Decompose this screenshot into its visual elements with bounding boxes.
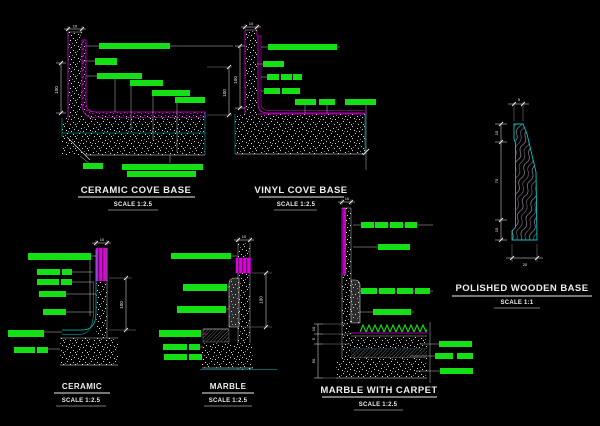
cad-drawing-canvas: 100 100 10 CERAMIC COVE BASE SCALE 1:2.5 bbox=[0, 0, 600, 426]
detail-scale: SCALE 1:2.5 bbox=[62, 398, 101, 404]
detail-marble-with-carpet: 10 5 50 10 MARBLE WITH CARPET SCALE 1:2.… bbox=[311, 196, 473, 410]
redacted-label-bar bbox=[263, 61, 284, 67]
dimension-wall-top: 10 bbox=[241, 21, 261, 29]
dim-text: 100 bbox=[54, 86, 59, 94]
dim-text: 20 bbox=[523, 262, 528, 267]
cove-profile bbox=[62, 250, 96, 335]
redacted-label-bar bbox=[83, 163, 103, 169]
dim-text: 10 bbox=[242, 234, 247, 239]
detail-scale: SCALE 1:2.5 bbox=[114, 202, 153, 208]
floor-section bbox=[235, 114, 365, 154]
dimension-wall-top: 10 bbox=[234, 234, 254, 242]
dim-text: 70 bbox=[494, 178, 499, 183]
wall-section bbox=[96, 248, 107, 338]
dim-text: 10 bbox=[100, 237, 105, 242]
dim-text: 100 bbox=[119, 301, 124, 309]
detail-scale: SCALE 1:2.5 bbox=[359, 402, 398, 408]
detail-title: CERAMIC COVE BASE bbox=[81, 185, 192, 196]
redacted-label-bar bbox=[440, 368, 473, 374]
label-bars bbox=[83, 43, 205, 177]
redacted-label-bar bbox=[37, 279, 59, 285]
redacted-label-bar bbox=[267, 74, 279, 80]
detail-ceramic: 100 10 CERAMIC SCALE 1:2.5 bbox=[8, 237, 136, 406]
detail-title: VINYL COVE BASE bbox=[254, 185, 347, 196]
marble-skirting bbox=[229, 278, 239, 327]
redacted-label-bar bbox=[293, 74, 302, 80]
detail-marble: 100 10 MARBLE SCALE 1:2.5 bbox=[159, 234, 277, 406]
dim-text: 50 bbox=[311, 358, 316, 363]
dim-text: 5 bbox=[311, 337, 316, 340]
dim-text: 100 bbox=[259, 296, 264, 304]
dimension-right: 100 bbox=[109, 276, 136, 332]
dim-text: 5 bbox=[518, 97, 521, 102]
redacted-label-bar bbox=[97, 73, 142, 79]
marble-skirting bbox=[351, 280, 360, 323]
dim-text: 10 bbox=[345, 196, 350, 201]
wall-tile-block bbox=[236, 258, 251, 273]
dim-text: 15 bbox=[494, 227, 499, 232]
dimension-wall-top: 10 bbox=[64, 24, 86, 32]
redacted-label-bar bbox=[264, 88, 280, 94]
dimension-wall-top: 10 bbox=[92, 237, 111, 246]
redacted-label-bar bbox=[152, 90, 190, 96]
detail-scale: SCALE 1:1 bbox=[501, 300, 534, 306]
redacted-label-bar bbox=[95, 58, 117, 65]
redacted-label-bar bbox=[127, 171, 196, 177]
dim-text: 10 bbox=[249, 21, 254, 26]
redacted-label-bar bbox=[281, 74, 292, 80]
redacted-label-bar bbox=[375, 222, 388, 228]
dimension-bottom: 20 bbox=[506, 244, 543, 267]
detail-vinyl-cove-base: 100 10 VINYL COVE BASE SCALE 1:2.5 bbox=[233, 21, 376, 210]
redacted-label-bar bbox=[390, 222, 403, 228]
wood-profile bbox=[512, 124, 537, 240]
redacted-label-bar bbox=[122, 164, 203, 170]
detail-scale: SCALE 1:2.5 bbox=[209, 398, 248, 404]
wall-tile-block bbox=[96, 248, 107, 281]
redacted-label-bar bbox=[37, 269, 60, 275]
redacted-label-bar bbox=[8, 330, 44, 337]
redacted-label-bar bbox=[373, 309, 411, 315]
redacted-label-bar bbox=[183, 284, 227, 291]
label-bars bbox=[263, 44, 376, 105]
dim-text: 10 bbox=[73, 24, 78, 29]
floor-section bbox=[62, 112, 205, 160]
dimension-left: 15 70 15 bbox=[494, 122, 507, 242]
dimension-top: 5 bbox=[508, 97, 529, 121]
dim-text: 100 bbox=[222, 89, 227, 97]
detail-polished-wooden-base: 15 70 15 5 20 POLISHED WOODEN BASE SCALE… bbox=[452, 97, 592, 308]
carpet-layer bbox=[351, 323, 427, 336]
redacted-label-bar bbox=[282, 88, 300, 94]
floor-section bbox=[60, 338, 118, 365]
redacted-label-bar bbox=[14, 347, 35, 353]
redacted-label-bar bbox=[405, 222, 417, 228]
redacted-label-bar bbox=[379, 288, 395, 294]
cad-sheet: 100 100 10 CERAMIC COVE BASE SCALE 1:2.5 bbox=[0, 0, 600, 426]
redacted-label-bar bbox=[39, 291, 66, 297]
detail-title: CERAMIC bbox=[62, 382, 102, 391]
redacted-label-bar bbox=[163, 344, 187, 350]
wall-section bbox=[68, 32, 82, 118]
redacted-label-bar bbox=[130, 80, 163, 86]
redacted-label-bar bbox=[37, 347, 48, 353]
redacted-label-bar bbox=[319, 99, 335, 105]
detail-scale: SCALE 1:2.5 bbox=[277, 202, 316, 208]
redacted-label-bar bbox=[295, 99, 316, 105]
wall-section bbox=[245, 30, 257, 114]
detail-ceramic-cove-base: 100 100 10 CERAMIC COVE BASE SCALE 1:2.5 bbox=[54, 24, 233, 211]
dim-text: 10 bbox=[311, 326, 316, 331]
dimension-left: 100 bbox=[233, 44, 245, 110]
redacted-label-bar bbox=[177, 306, 226, 313]
redacted-label-bar bbox=[43, 309, 66, 315]
redacted-label-bar bbox=[159, 330, 201, 337]
redacted-label-bar bbox=[189, 354, 202, 360]
redacted-label-bar bbox=[415, 288, 430, 294]
redacted-label-bar bbox=[378, 244, 410, 250]
redacted-label-bar bbox=[439, 341, 472, 347]
redacted-label-bar bbox=[345, 99, 376, 105]
dimension-right: 100 bbox=[207, 65, 232, 117]
dim-text: 100 bbox=[233, 76, 238, 84]
redacted-label-bar bbox=[361, 222, 374, 228]
redacted-label-bar bbox=[435, 353, 453, 359]
redacted-label-bar bbox=[361, 288, 377, 294]
detail-title: MARBLE WITH CARPET bbox=[320, 385, 437, 396]
detail-title: POLISHED WOODEN BASE bbox=[455, 283, 588, 294]
redacted-label-bar bbox=[268, 44, 337, 50]
dim-text: 15 bbox=[494, 130, 499, 135]
redacted-label-bar bbox=[61, 279, 72, 285]
redacted-label-bar bbox=[457, 353, 473, 359]
redacted-label-bar bbox=[397, 288, 413, 294]
redacted-label-bar bbox=[28, 253, 91, 260]
redacted-label-bar bbox=[99, 43, 170, 49]
wall-section bbox=[342, 208, 351, 358]
redacted-label-bar bbox=[62, 269, 72, 275]
redacted-label-bar bbox=[175, 97, 205, 103]
redacted-label-bar bbox=[171, 253, 231, 259]
redacted-label-bar bbox=[189, 344, 200, 350]
dimension-left: 100 bbox=[54, 61, 66, 115]
redacted-label-bar bbox=[164, 354, 187, 360]
detail-title: MARBLE bbox=[210, 382, 247, 391]
